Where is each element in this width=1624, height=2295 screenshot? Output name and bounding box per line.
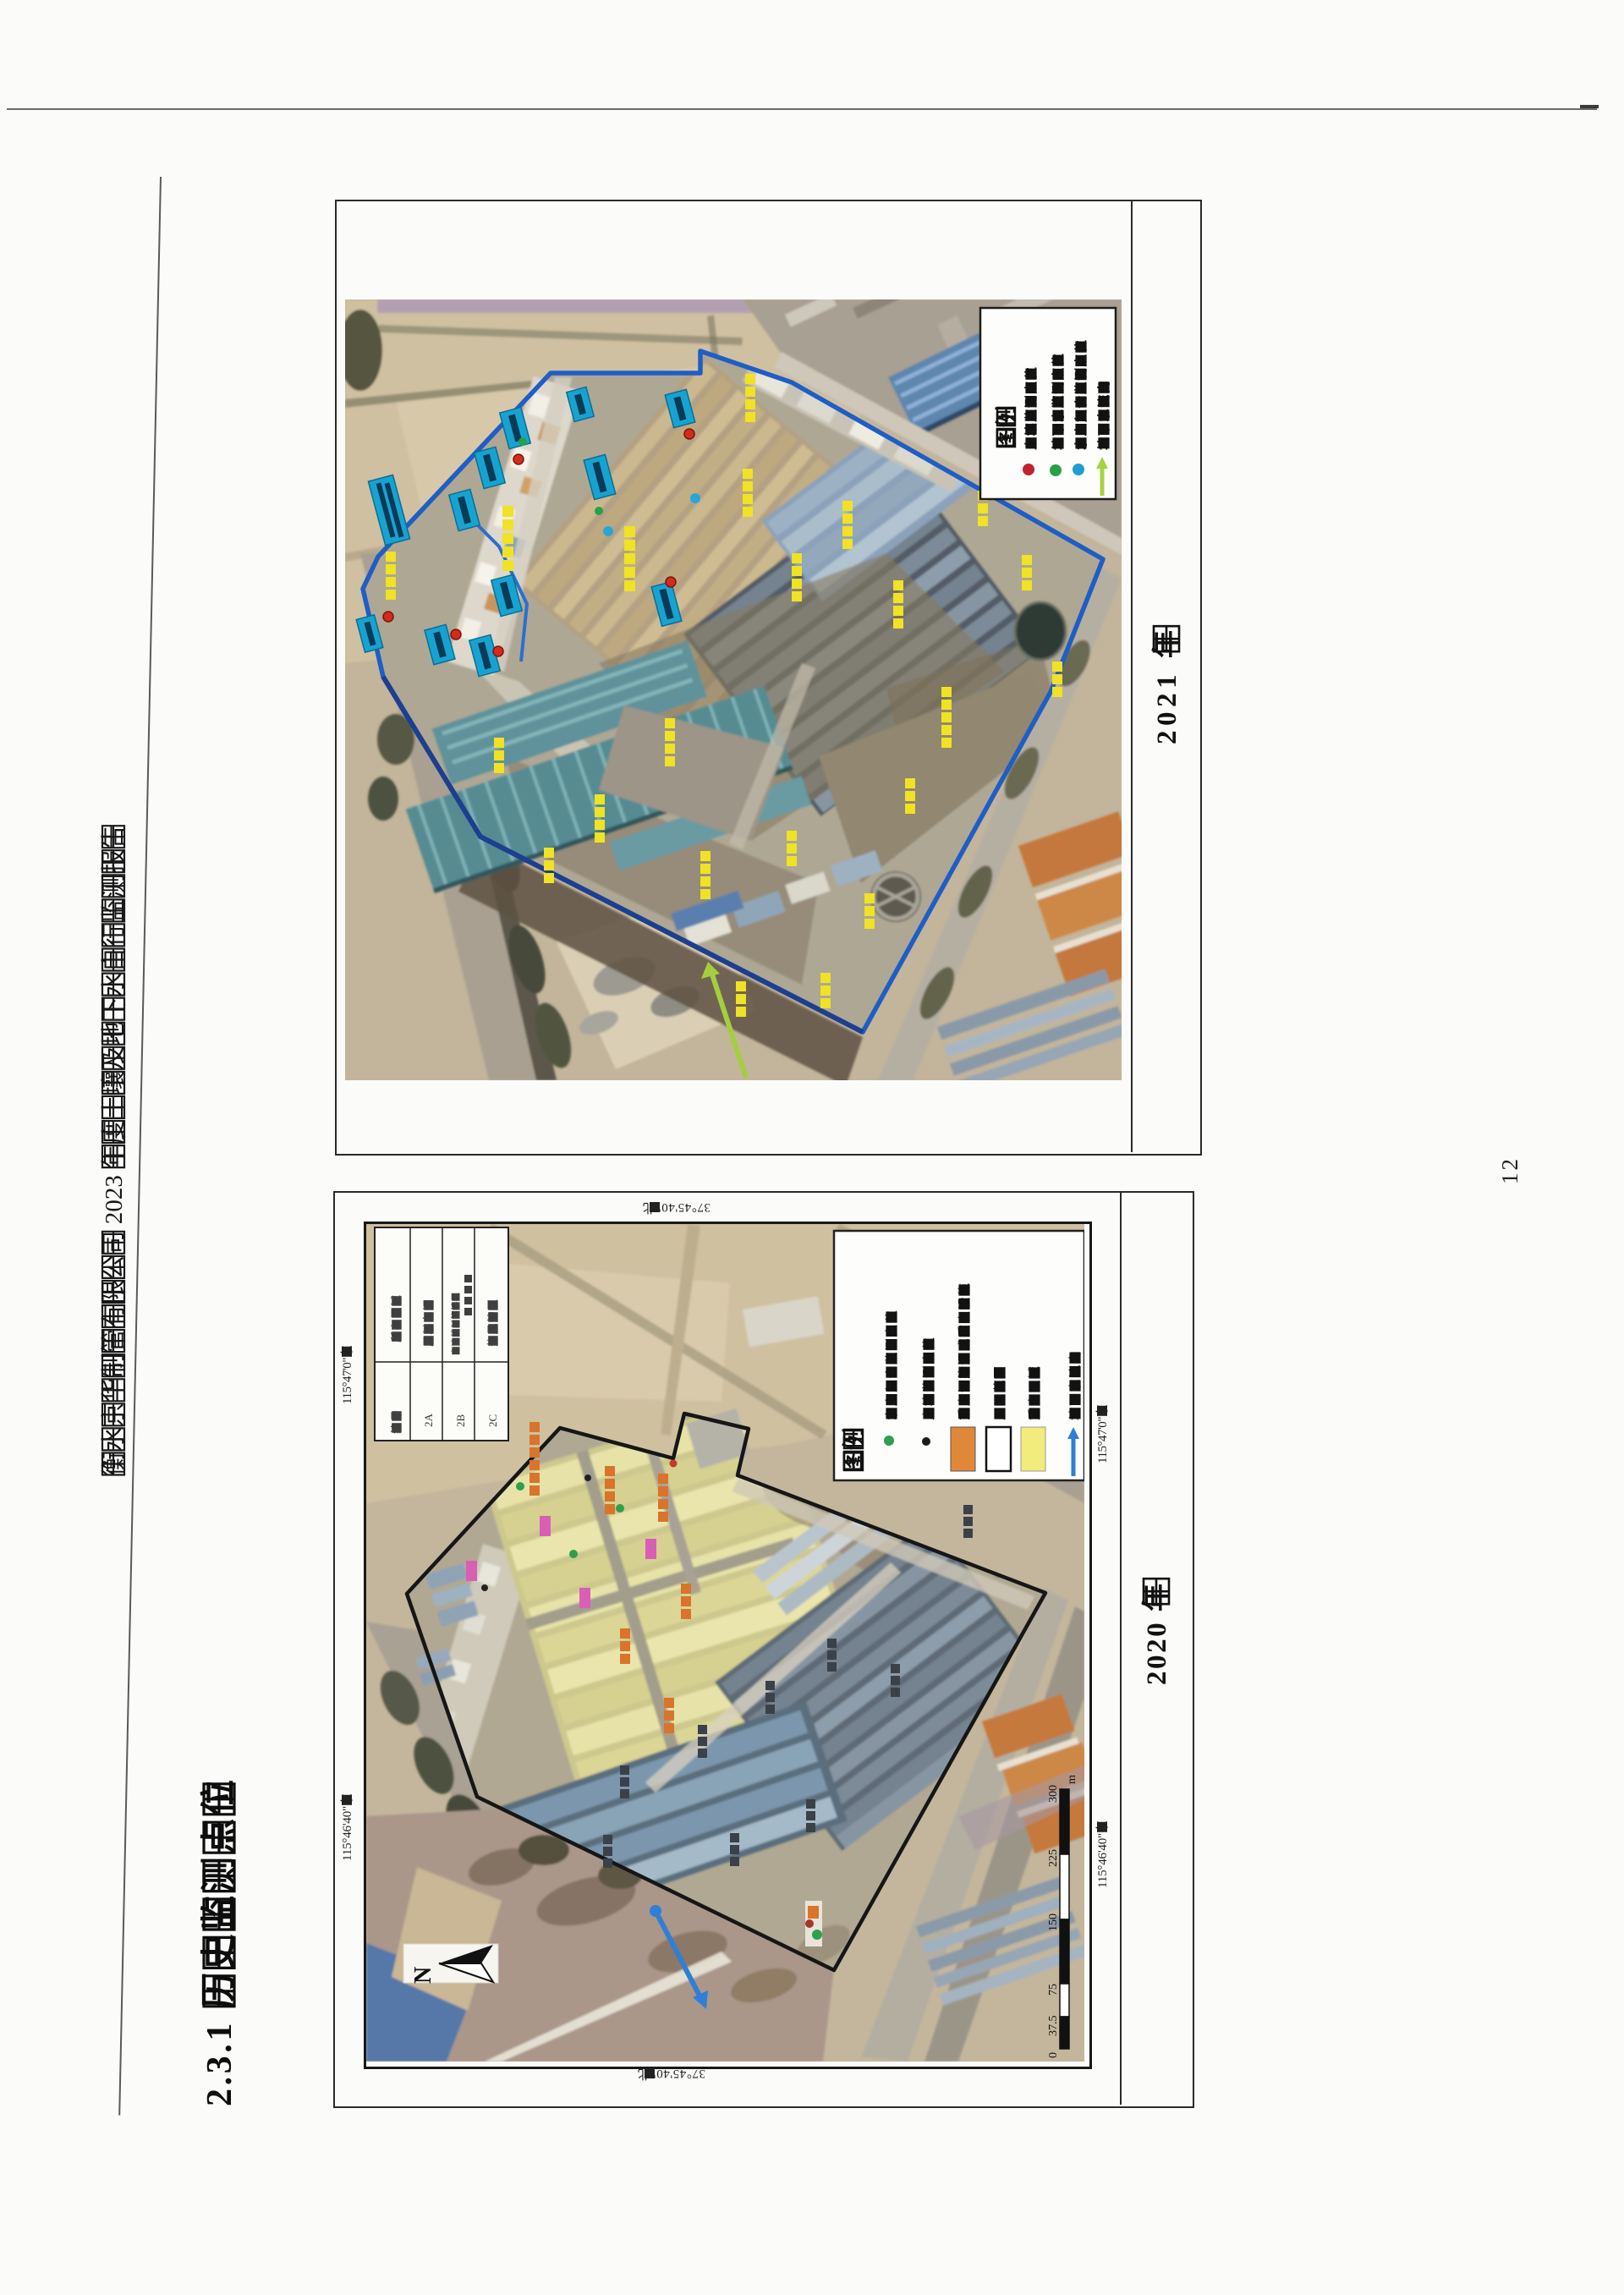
- svg-text:2021 年: 2021 年: [1151, 630, 1182, 744]
- svg-text:12: 12: [1497, 1159, 1522, 1184]
- svg-text:115°46'40"东: 115°46'40"东: [340, 1793, 354, 1861]
- svg-text:37°45'40"北: 37°45'40"北: [643, 1200, 710, 1215]
- svg-text:2020 年: 2020 年: [1141, 1584, 1172, 1685]
- svg-text:115°47'0"东: 115°47'0"东: [340, 1345, 354, 1404]
- svg-text:115°47'0"东: 115°47'0"东: [1095, 1404, 1110, 1463]
- svg-text:衡水京华制管有限公司 2023 年度土壤及地下水自行监测报告: 衡水京华制管有限公司 2023 年度土壤及地下水自行监测报告: [100, 825, 128, 1476]
- svg-text:2.3.1 历史监测点位: 2.3.1 历史监测点位: [200, 1780, 239, 2106]
- svg-text:37°45'40"北: 37°45'40"北: [638, 2067, 705, 2081]
- svg-text:115°46'40"东: 115°46'40"东: [1095, 1820, 1110, 1888]
